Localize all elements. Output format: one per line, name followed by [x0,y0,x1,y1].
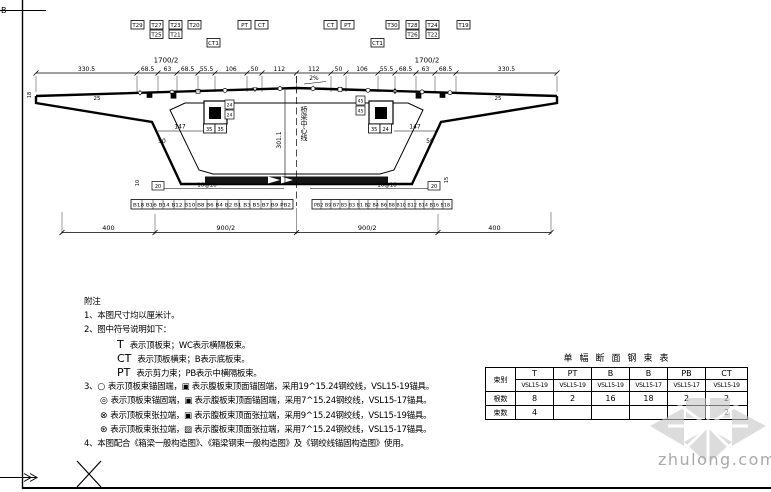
svg-text:35: 35 [371,127,377,133]
svg-text:24: 24 [227,113,233,119]
note-1: 1、本图尺寸均以厘米计。 [84,309,434,323]
svg-text:45: 45 [358,99,364,105]
crossed-circle-anchor-symbol: ⊗ [100,411,107,421]
diamond-anchor-icon [138,91,142,95]
top-dim-extensions [36,76,557,92]
svg-text:50: 50 [158,138,166,145]
svg-text:25: 25 [94,96,101,102]
bottom-dim-values: 400 900/2 900/2 400 [102,224,500,232]
anchor-cell: VSL15-19 [592,380,630,392]
row-label: 束数 [486,406,516,420]
svg-text:CT1: CT1 [208,41,219,47]
svg-text:147: 147 [409,124,421,131]
svg-text:400: 400 [488,224,500,232]
svg-text:330.5: 330.5 [78,66,95,73]
svg-text:45: 45 [358,109,364,115]
anchor-cell: VSL15-17 [668,380,706,392]
svg-text:CT: CT [327,23,335,29]
col-header: B [630,368,668,380]
svg-text:T22: T22 [426,33,437,39]
notes-block: 附注 1、本图尺寸均以厘米计。 2、图中符号说明如下： T表示顶板束；WC表示横… [84,295,434,451]
svg-text:CT: CT [258,23,266,29]
svg-text:900/2: 900/2 [358,224,377,232]
anchor-cell: VSL15-19 [554,380,592,392]
svg-text:63: 63 [422,66,430,73]
filled-anchor-icon [171,93,176,98]
svg-text:50: 50 [251,66,259,73]
svg-text:10: 10 [135,180,141,186]
right-anchor-plate [376,108,387,119]
anchor-cell: VSL15-19 [706,380,748,392]
bottom-strip-right-labels: PB2 B9 B7 B5 B3 B1 B2 B4 B6 B8 B10 B12 B… [314,203,450,209]
svg-text:18: 18 [27,92,33,98]
note-3-4: ⊛表示顶板束张拉端，▨ 表示腹板束顶面张拉端，采用7^15.24钢绞线，VSL1… [84,423,434,437]
svg-text:T21: T21 [169,33,180,39]
note-3-2: ◎表示顶板束锚固端，▣ 表示腹板束顶面锚固端，采用7^15.24钢绞线，VSL1… [84,394,434,408]
svg-text:50: 50 [426,138,434,145]
tendon-table-title: 单幅断面钢束表 [485,351,747,364]
anchor-cell: VSL15-17 [630,380,668,392]
svg-text:T25: T25 [150,33,162,39]
svg-text:900/2: 900/2 [216,224,235,232]
circle-anchor-symbol: ○ [97,382,105,392]
anchor-cell: VSL15-19 [516,380,554,392]
filled-anchor-icon [147,93,152,98]
svg-text:T20: T20 [188,23,200,29]
note-3-1: 3、○表示顶板束锚固端，▣ 表示腹板束顶面锚固端，采用19^15.24钢绞线，V… [84,380,434,394]
circle-anchor-icon [278,87,282,91]
svg-text:106: 106 [356,66,368,73]
frame-top-mark-label: B [1,6,7,15]
note-2-t: T表示顶板束；WC表示横隔板束。 [84,338,434,352]
svg-text:25: 25 [495,96,502,102]
value-cell: 2 [554,392,592,406]
svg-text:20: 20 [155,184,161,190]
filled-anchor-icon [440,93,445,98]
svg-text:112: 112 [274,66,286,73]
frame-x-mark [77,461,101,487]
note-3-3: ⊗表示顶板束张拉端，▣ 表示腹板束顶面张拉端，采用9^15.24钢绞线，VSL1… [84,409,434,423]
col-header: T [516,368,554,380]
circle-anchor-icon [311,87,315,91]
svg-text:63: 63 [164,66,172,73]
svg-text:CT1: CT1 [372,41,383,47]
value-cell [592,406,630,420]
circle-anchor-icon [366,88,370,92]
col-header: PT [554,368,592,380]
top-dim-values: 330.5 68.5 63 68.5 55.5 106 50 112 112 5… [78,57,515,73]
top-dim-chain [34,71,560,93]
svg-text:24: 24 [383,127,389,133]
svg-text:T24: T24 [426,23,438,29]
svg-text:68.5: 68.5 [181,66,195,73]
svg-text:68.5: 68.5 [141,66,155,73]
double-circle-anchor-symbol: ◎ [100,396,108,406]
svg-text:330.5: 330.5 [498,66,515,73]
svg-text:16@18: 16@18 [377,182,397,188]
value-cell: 16 [592,392,630,406]
half-width-left: 1700/2 [154,57,179,65]
note-2-ct: CT表示顶板横束；B表示底板束。 [84,352,434,366]
row-label: 根数 [486,392,516,406]
col-header: PB [668,368,706,380]
svg-text:T26: T26 [406,33,418,39]
svg-text:24: 24 [227,103,233,109]
svg-text:35: 35 [206,127,212,133]
square-anchor-icon [338,87,342,91]
note-2: 2、图中符号说明如下： [84,323,434,337]
notes-title: 附注 [84,295,434,309]
left-anchor-plate [210,108,221,119]
value-cell [554,406,592,420]
cad-sheet: B 35 35 [0,0,771,492]
value-cell: 8 [516,392,554,406]
girder-centerline: 桥梁中心线 [297,76,309,206]
slope-value: 2% [309,75,319,82]
logo-square-left [686,398,706,418]
svg-text:55.5: 55.5 [200,66,214,73]
starred-circle-anchor-symbol: ⊛ [100,425,107,435]
svg-text:68.5: 68.5 [399,66,413,73]
svg-text:112: 112 [308,66,320,73]
svg-text:50: 50 [335,66,343,73]
bottom-dim-chain [60,208,554,235]
svg-text:T28: T28 [406,23,418,29]
girder-height-value: 301.1 [276,131,283,148]
half-width-right: 1700/2 [415,57,440,65]
svg-text:147: 147 [174,124,186,131]
table-corner-cell: 束别 [486,368,516,392]
svg-text:20: 20 [431,184,437,190]
svg-text:T23: T23 [169,23,181,29]
centerline-label: 桥梁中心线 [300,105,308,141]
note-2-pt: PT表示剪力束；PB表示中横隔板束。 [84,366,434,380]
svg-text:T19: T19 [457,23,469,29]
circle-anchor-icon [448,91,452,95]
logo-square-right [710,398,730,418]
svg-text:16@18: 16@18 [197,182,217,188]
svg-text:PT: PT [241,23,248,29]
svg-text:15: 15 [444,177,450,183]
svg-text:35: 35 [218,127,224,133]
svg-text:T30: T30 [386,23,398,29]
filled-anchor-icon [416,93,421,98]
note-4: 4、本图配合《箱梁一般构造图》、《箱梁钢束一般构造图》及《钢绞线锚固构造图》使用… [84,437,434,451]
circle-anchor-icon [223,88,227,92]
watermark-text: zhulong.com [658,450,771,469]
svg-text:T29: T29 [131,23,143,29]
svg-text:106: 106 [225,66,237,73]
svg-text:PT: PT [344,23,351,29]
col-header: CT [706,368,748,380]
top-tendon-labels [131,21,470,48]
svg-text:T27: T27 [150,23,162,29]
value-cell: 4 [516,406,554,420]
svg-text:55.5: 55.5 [380,66,394,73]
svg-text:400: 400 [102,224,114,232]
bottom-dim-extensions [62,208,551,234]
bottom-strip-left-labels: B18 B16 B14 B12 B10 B8 B6 B4 B2 B1 B3 B5… [133,203,291,209]
svg-text:68.5: 68.5 [439,66,453,73]
col-header: B [592,368,630,380]
